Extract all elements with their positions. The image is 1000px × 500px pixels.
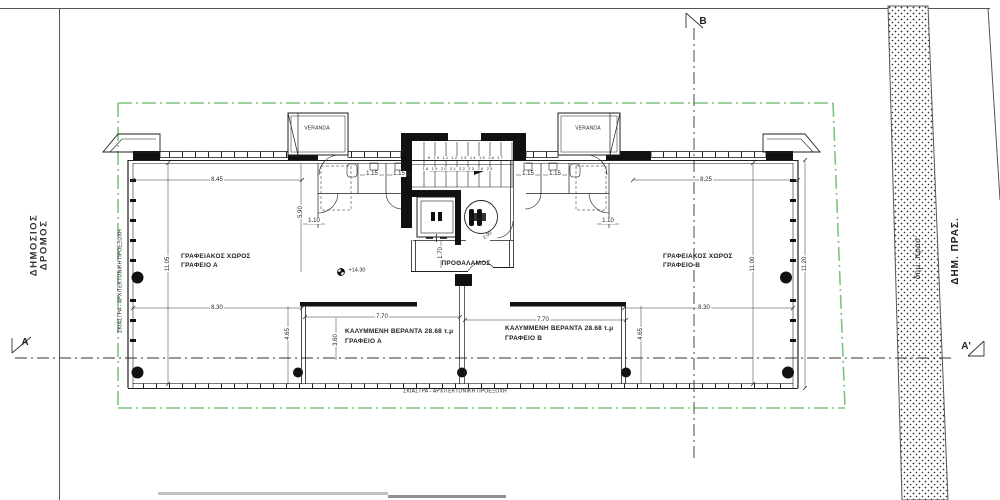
dim-770-right: 7.70 [536, 317, 550, 323]
section-marker-a: A [21, 338, 28, 348]
stair-core [401, 133, 526, 241]
section-marker-b: B [699, 17, 706, 27]
bottom-title-remnant [158, 492, 506, 498]
service-rooms-left [318, 163, 403, 228]
entrance-path [455, 274, 472, 384]
dim-845: 8.45 [210, 177, 224, 183]
covered-veranda-b-label: ΚΑΛΥΜΜΕΝΗ ΒΕΡΑΝΤΑ 28.68 τ.μ [505, 326, 613, 333]
louvre-note-bottom: ΣΚΙΑΣΤΡΑ - ΑΡΧΙΤΕΚΤΟΝΙΚΗ ΠΡΟΕΞΟΧΗ [403, 390, 507, 395]
office-a-label: ΓΡΑΦΕΙΟ Α [181, 263, 218, 270]
dim-830-left: 8.30 [210, 305, 224, 311]
dim-1105: 11.05 [165, 256, 171, 273]
floor-plan-drawing: ΔΗΜΟΣΙΟΣ ΔΡΟΜΟΣ ΔΗΜ. ΠΡΑΣ. δημ. πρασ: A … [0, 0, 1000, 500]
covered-veranda-b-office: ΓΡΑΦΕΙΟ Β [505, 336, 542, 343]
public-road-label: ΔΗΜΟΣΙΟΣ ΔΡΟΜΟΣ [30, 214, 49, 276]
dim-115-b: 1.15 [392, 171, 406, 177]
stair-step-numbers-upper: 9 10 11 12 13 14 15 16 17 [427, 156, 505, 160]
office-b-space-label: ΓΡΑΦΕΙΑΚΟΣ ΧΩΡΟΣ [663, 254, 733, 261]
office-a-space-label: ΓΡΑΦΕΙΑΚΟΣ ΧΩΡΟΣ [181, 254, 251, 261]
dim-115-c: 1.15 [521, 171, 535, 177]
dim-465-left: 4.65 [285, 327, 291, 341]
public-road-line2: ΔΡΟΜΟΣ [39, 214, 49, 276]
dim-360: 3.60 [333, 333, 339, 347]
covered-veranda-a-label: ΚΑΛΥΜΜΕΝΗ ΒΕΡΑΝΤΑ 28.68 τ.μ [345, 329, 453, 336]
veranda-right-label: VERANDA [575, 127, 601, 132]
dim-110-left: 1.10 [307, 218, 321, 224]
dim-110-right: 1.10 [601, 218, 615, 224]
service-rooms-right [524, 163, 609, 228]
office-b-label: ΓΡΑΦΕΙΟ Β [663, 263, 700, 270]
dim-825: 8.25 [699, 177, 713, 183]
dim-170: 1.70 [438, 246, 444, 260]
section-line-b [686, 13, 703, 458]
columns [132, 272, 795, 379]
dim-115-d: 1.15 [548, 171, 562, 177]
section-marker-a-prime: A' [961, 342, 971, 352]
site-frame [0, 8, 1000, 500]
plan-linework [0, 0, 1000, 500]
level-marker-icon [338, 269, 345, 276]
dim-465-right: 4.65 [638, 327, 644, 341]
municipal-green-label-small: δημ. πρασ: [914, 235, 922, 280]
dim-590: 5.90 [298, 205, 304, 219]
vestibule-label: ΠΡΟΘΑΛΑΜΟΣ [441, 261, 490, 268]
section-line-a [12, 337, 984, 358]
facade-walls [128, 161, 798, 164]
veranda-box-right [558, 113, 620, 175]
veranda-left-label: VERANDA [304, 127, 330, 132]
dim-1120: 11.20 [802, 256, 808, 273]
stair-step-numbers-lower: 18 19 20 21 22 23 24 25 [422, 167, 495, 171]
wheelchair-icon [469, 209, 486, 226]
louvre-note-left: ΣΚΙΑΣΤΡΑ - ΑΡΧΙΤΕΚΤΟΝΙΚΗ ΠΡΟΕΞΟΧΗ [119, 229, 124, 333]
elevator [417, 195, 461, 245]
level-marker-value: +14.30 [349, 268, 366, 274]
dim-770-left: 7.70 [375, 314, 389, 320]
covered-veranda-a-office: ΓΡΑΦΕΙΟ Α [345, 339, 382, 346]
dim-1100: 11.00 [750, 256, 756, 273]
dim-830-right: 8.30 [697, 305, 711, 311]
canopy-right [763, 134, 820, 152]
municipal-green-label: ΔΗΜ. ΠΡΑΣ. [951, 217, 961, 284]
dim-115-a: 1.15 [365, 171, 379, 177]
canopy-left [103, 134, 160, 152]
